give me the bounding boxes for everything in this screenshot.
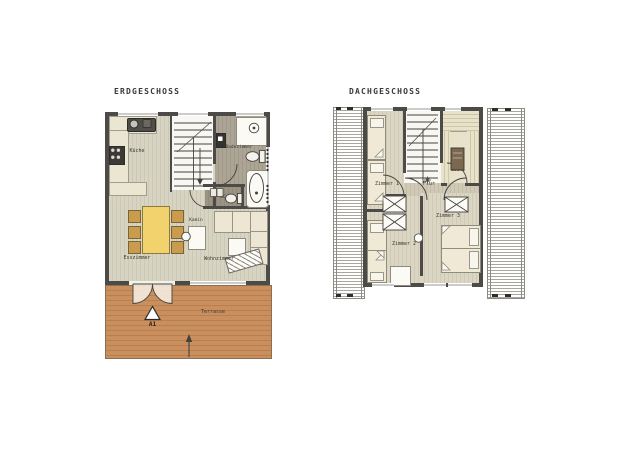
window <box>372 283 394 287</box>
room-label-terrasse: Terrasse <box>188 310 238 315</box>
pillow <box>370 223 384 233</box>
window <box>178 112 208 116</box>
fireplace <box>188 226 206 250</box>
room-label-zimmer2: Zimmer 2 <box>382 242 426 247</box>
kitchen-sink-unit <box>127 118 156 132</box>
roof-mark <box>492 108 498 111</box>
shower <box>236 117 267 146</box>
staircase-dg <box>404 111 441 183</box>
sofa-cushion <box>250 211 268 233</box>
terrasse-deck <box>105 285 272 359</box>
roof-slope-right <box>487 108 525 299</box>
chair <box>128 210 141 223</box>
roof-mark <box>505 108 511 111</box>
wall-hall-rail <box>420 196 423 276</box>
dachgeschoss-title: DACHGESCHOSS <box>349 87 421 96</box>
kitchen-peninsula <box>109 182 147 196</box>
roof-slope-left <box>333 107 365 299</box>
room-label-zimmer1: Zimmer 1 <box>365 182 409 187</box>
roof-mark <box>505 294 511 297</box>
roof-mark <box>347 294 353 297</box>
window <box>118 112 158 116</box>
wall <box>170 116 172 192</box>
roof-mark <box>336 294 341 297</box>
entrance-marker-a1-label: A1 <box>145 322 160 328</box>
floor-plan-sheet: ERDGESCHOSS Küche Badezimmer W <box>0 0 640 452</box>
wall <box>384 194 406 197</box>
dining-table <box>142 206 170 254</box>
chair <box>171 241 184 254</box>
room-label-flur: Flur <box>411 182 447 187</box>
roof-mark <box>336 107 341 110</box>
window <box>266 147 270 205</box>
window <box>448 283 472 287</box>
pillow <box>370 163 384 173</box>
pillow <box>370 118 384 128</box>
sofa-cushion <box>232 211 252 233</box>
window <box>407 107 431 111</box>
plan-linework <box>0 0 640 452</box>
erdgeschoss-title: ERDGESCHOSS <box>114 87 180 96</box>
wall <box>440 111 443 163</box>
room-label-badezimmer: Badezimmer <box>217 146 261 151</box>
room-label-wc: WC <box>216 196 230 201</box>
wall <box>367 209 384 212</box>
room-label-sauna: Sauna <box>440 169 476 174</box>
room-label-esszimmer: Esszimmer <box>112 256 162 261</box>
chair <box>128 241 141 254</box>
wall <box>241 186 244 206</box>
room-label-kueche: Küche <box>122 149 152 154</box>
room-label-zimmer3: Zimmer 3 <box>426 214 470 219</box>
room-label-kamin: Kamin <box>181 219 211 224</box>
roof-mark <box>347 107 353 110</box>
sofa-cushion <box>214 211 234 233</box>
pillow <box>469 228 479 246</box>
staircase-eg <box>172 116 213 190</box>
sauna-bench <box>441 111 479 132</box>
window <box>236 112 264 116</box>
sauna-bench <box>467 131 479 183</box>
pillow <box>370 272 384 281</box>
window <box>371 107 393 111</box>
room-label-wohnzimmer: Wohnzimmer <box>194 257 244 262</box>
chair <box>171 226 184 239</box>
window <box>424 283 446 287</box>
roof-mark <box>492 294 498 297</box>
wall <box>403 111 406 173</box>
window <box>445 107 461 111</box>
pillow <box>469 251 479 269</box>
wall <box>203 184 245 187</box>
wall <box>465 183 479 186</box>
chair <box>128 226 141 239</box>
